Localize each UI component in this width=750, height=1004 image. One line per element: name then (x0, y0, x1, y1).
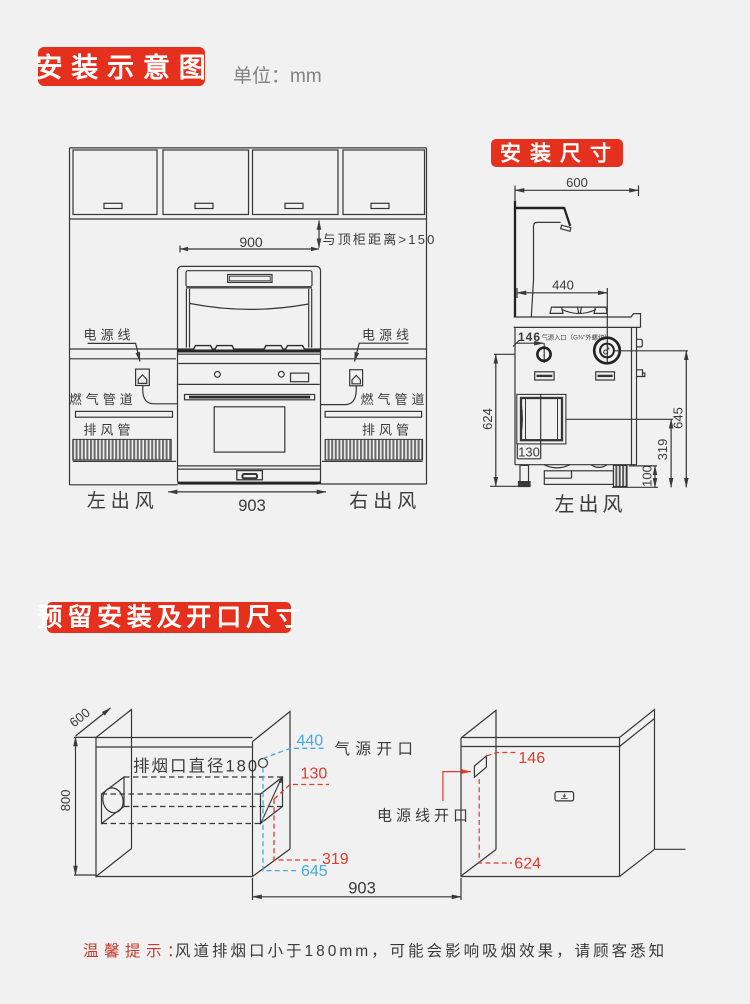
svg-text:903: 903 (238, 497, 266, 515)
svg-text:左出风: 左出风 (87, 490, 159, 512)
svg-text:624: 624 (514, 856, 541, 873)
svg-text:600: 600 (566, 175, 588, 190)
svg-text:电源线: 电源线 (362, 328, 413, 343)
svg-text:单位：mm: 单位：mm (233, 65, 322, 87)
svg-text:电源线开口: 电源线开口 (377, 808, 472, 825)
svg-text:440: 440 (552, 278, 574, 293)
svg-text:安装尺寸: 安装尺寸 (500, 142, 620, 166)
svg-text:右出风: 右出风 (349, 490, 421, 512)
svg-text:900: 900 (239, 234, 263, 250)
svg-text:440: 440 (296, 733, 323, 750)
svg-text:燃气管道: 燃气管道 (69, 392, 137, 407)
svg-text:800: 800 (58, 790, 73, 812)
svg-text:903: 903 (348, 880, 376, 898)
svg-text:燃气管道: 燃气管道 (360, 392, 428, 407)
svg-text:130: 130 (301, 766, 328, 783)
svg-text:624: 624 (480, 408, 495, 430)
svg-text:风道排烟口小于180mm，可能会影响吸烟效果，请顾客悉知: 风道排烟口小于180mm，可能会影响吸烟效果，请顾客悉知 (175, 942, 667, 960)
svg-text:左出风: 左出风 (555, 493, 627, 516)
svg-text:气源开口: 气源开口 (335, 740, 419, 758)
svg-text:预留安装及开口尺寸: 预留安装及开口尺寸 (37, 603, 305, 632)
svg-text:排烟口直径180: 排烟口直径180 (133, 757, 259, 776)
svg-text:645: 645 (671, 407, 686, 429)
svg-text:319: 319 (655, 439, 670, 461)
svg-text:146: 146 (518, 750, 545, 767)
svg-text:与顶柜距离>150: 与顶柜距离>150 (323, 232, 437, 247)
svg-text:安装示意图: 安装示意图 (36, 52, 215, 83)
svg-text:温馨提示：: 温馨提示： (83, 942, 188, 960)
svg-text:排风管: 排风管 (83, 423, 134, 438)
svg-text:排风管: 排风管 (362, 423, 413, 438)
svg-text:130: 130 (518, 445, 540, 460)
svg-text:电源线: 电源线 (83, 328, 134, 343)
svg-text:146: 146 (518, 330, 541, 344)
svg-text:645: 645 (301, 863, 328, 880)
svg-text:100: 100 (640, 465, 655, 487)
